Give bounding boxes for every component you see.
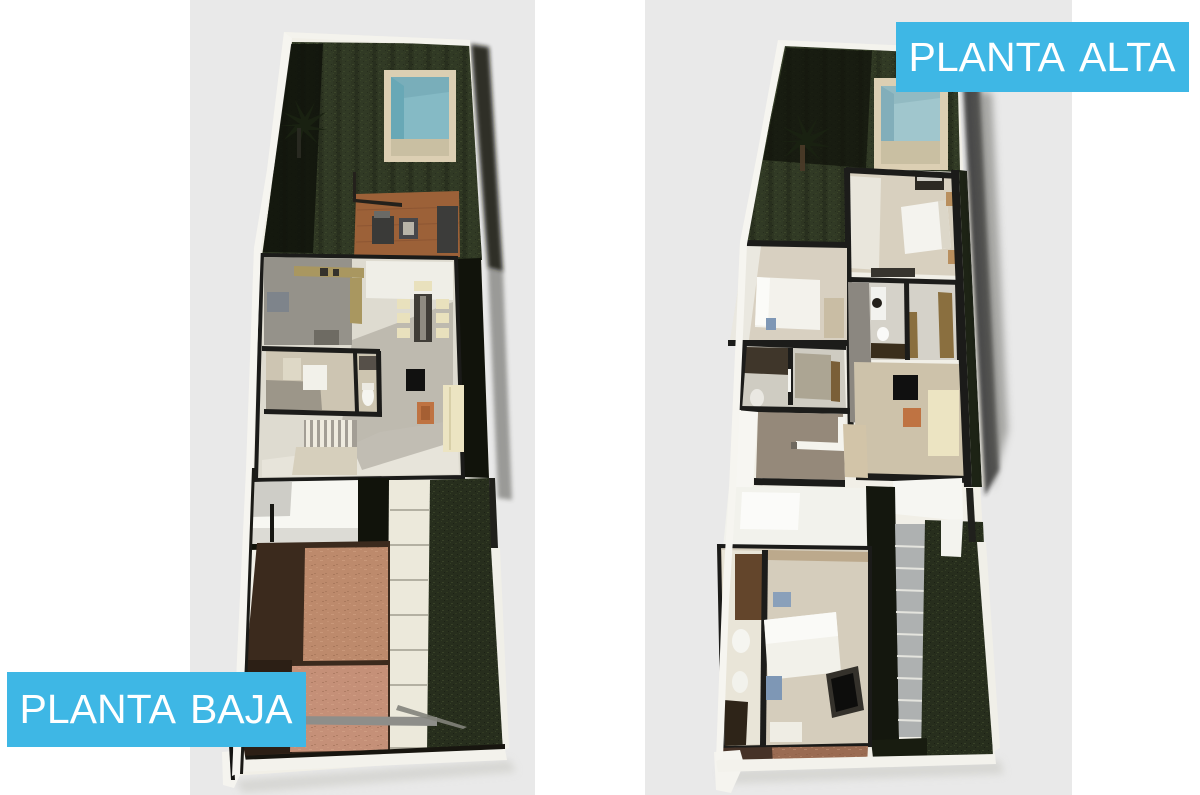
svg-text:PLANTAALTA: PLANTAALTA [909,34,1177,80]
svg-text:PLANTABAJA: PLANTABAJA [20,686,294,732]
